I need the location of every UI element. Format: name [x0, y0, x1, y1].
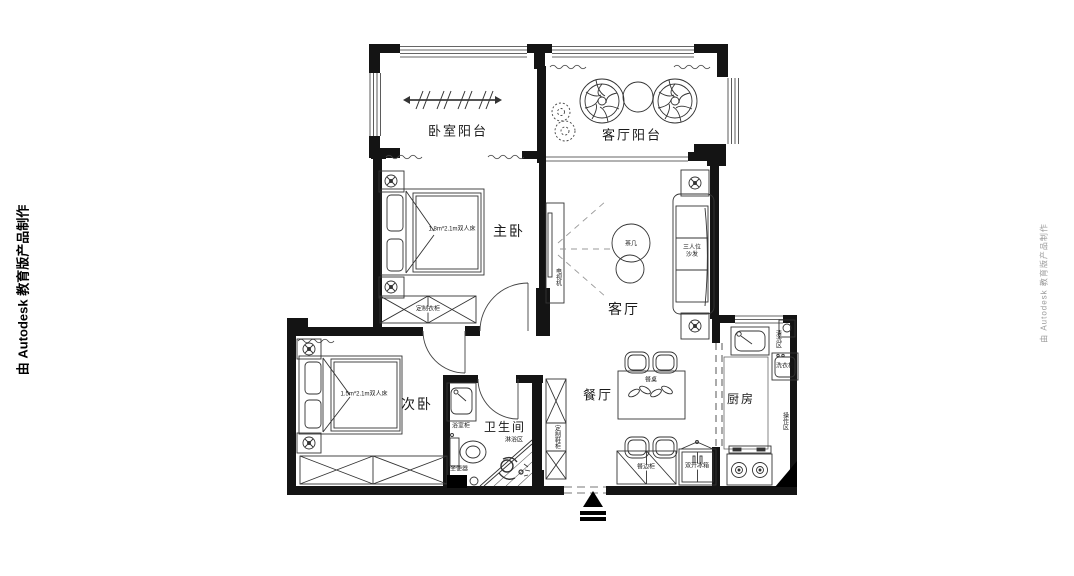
round-chair-right [653, 79, 697, 123]
sink-area-label: 清洗区 [774, 330, 781, 348]
master-wardrobe-label-text: 定制衣柜 [415, 307, 441, 313]
coffee-table-label: 茶几 [625, 242, 637, 249]
kitchen-sliding-door [716, 343, 722, 447]
kitchen-corner-column [775, 461, 797, 487]
entry-arrow [580, 491, 606, 521]
work-area-label: 操作区 [781, 412, 788, 430]
shower-area [480, 440, 532, 486]
shoe-cabinet-label: 定制鞋柜 [553, 425, 560, 449]
washing-machine-label: 洗衣机 [776, 364, 794, 371]
fridge-label-text: 双开冰箱 [684, 464, 710, 470]
sideboard-label: 餐边柜 [636, 465, 656, 472]
tv-viewing-lines [558, 201, 614, 297]
round-chair-left [580, 79, 624, 123]
wavy-window-symbols [298, 65, 710, 343]
door-swings [423, 283, 528, 419]
living-balcony-label: 客厅阳台 [602, 129, 662, 144]
sofa-side-table-top [681, 170, 709, 196]
second-wardrobe [300, 456, 447, 484]
toilet-label: 坐便器 [450, 467, 468, 474]
vanity-label: 浴室柜 [452, 424, 470, 431]
dining-room-label: 餐厅 [583, 389, 613, 404]
master-bed-label: 1.8m*2.1m双人床 [428, 227, 475, 234]
vanity [447, 383, 476, 421]
master-wardrobe-label: 定制衣柜 [415, 307, 441, 314]
autodesk-watermark-left: 由 Autodesk 教育版产品制作 [13, 205, 32, 375]
dining-table-label-text: 餐桌 [644, 378, 658, 384]
kitchen-label: 厨房 [727, 393, 755, 407]
shower-label: 淋浴区 [505, 438, 523, 445]
drying-rack [403, 91, 502, 109]
plants [552, 103, 575, 141]
kitchen-sink [731, 327, 769, 355]
second-nightstand-bottom [297, 433, 321, 453]
dining-chairs [625, 352, 677, 458]
toilet [450, 434, 486, 467]
second-bed-label: 1.5m*2.1m双人床 [340, 392, 387, 399]
floor-plan-page: 卧室阳台 客厅阳台 主卧 客厅 次卧 卫生间 餐厅 厨房 1.8m*2.1m双人… [0, 0, 1074, 576]
master-bedroom-label: 主卧 [493, 223, 525, 239]
floor-plan-canvas [0, 0, 1074, 576]
kitchen-window [735, 314, 783, 325]
entry-opening [564, 487, 606, 493]
sofa-label: 三人位沙发 [682, 245, 702, 259]
walls [287, 44, 797, 495]
bedroom-balcony-label: 卧室阳台 [428, 125, 488, 140]
dining-table-label: 餐桌 [644, 378, 658, 385]
bathroom-label: 卫生间 [484, 421, 526, 435]
master-nightstand-bottom [379, 277, 404, 298]
living-room-label: 客厅 [608, 301, 640, 317]
autodesk-watermark-right: 由 Autodesk 教育版产品制作 [1039, 223, 1050, 343]
coffee-table [612, 224, 650, 283]
tv-label: 电视机 [554, 268, 561, 286]
balcony-table [623, 82, 653, 112]
sideboard-label-text: 餐边柜 [636, 465, 656, 471]
fridge-label: 双开冰箱 [684, 464, 710, 471]
stove [727, 446, 772, 485]
second-bedroom-label: 次卧 [401, 396, 433, 412]
sofa-side-table-bottom [681, 313, 709, 339]
